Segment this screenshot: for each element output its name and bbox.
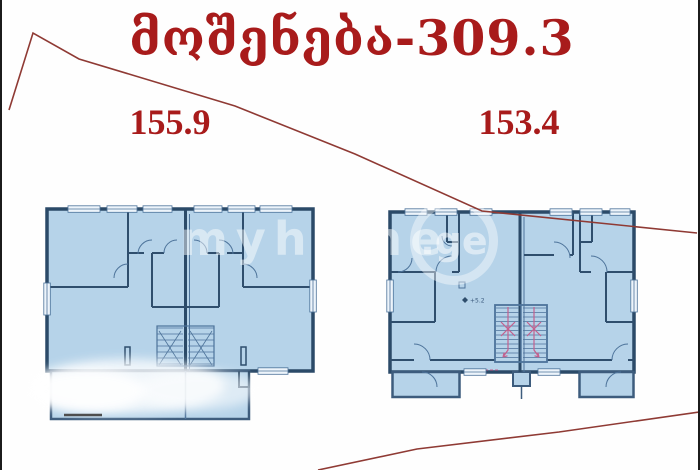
floor-plan-sheet: +5.2 bbox=[0, 0, 700, 470]
left-plan-door-arcs bbox=[114, 240, 257, 278]
balcony-left bbox=[393, 372, 460, 397]
elevation-mark: +5.2 bbox=[462, 297, 485, 305]
right-plan-windows bbox=[387, 209, 638, 375]
watermark-suffix: .ge bbox=[420, 219, 487, 263]
blurred-patch bbox=[29, 359, 259, 413]
page-title: მოშენება-309.3 bbox=[2, 10, 700, 66]
left-plan-stairs bbox=[157, 326, 214, 366]
area-label-right: 153.4 bbox=[469, 101, 569, 143]
left-plan-interior-walls bbox=[47, 209, 313, 307]
stair-arrows bbox=[480, 307, 562, 370]
right-floor-plan: +5.2 bbox=[387, 209, 638, 399]
left-plan-windows bbox=[44, 206, 317, 374]
right-plan-stairs bbox=[495, 305, 547, 362]
red-boundary-line-bottom bbox=[318, 412, 699, 470]
wall-stub bbox=[241, 347, 246, 365]
balcony-right bbox=[580, 372, 634, 397]
floor-plans-layer: +5.2 bbox=[2, 0, 700, 470]
watermark-main: myhome bbox=[180, 212, 449, 266]
right-plan-interior-walls bbox=[390, 212, 634, 360]
fixture-square bbox=[459, 282, 465, 288]
right-plan-door-arcs bbox=[398, 236, 628, 387]
watermark-text: myhome bbox=[180, 212, 449, 266]
wall-stub bbox=[125, 347, 130, 365]
left-floor-plan bbox=[29, 206, 316, 419]
watermark-circle-icon: .ge bbox=[410, 197, 498, 285]
elevation-label: +5.2 bbox=[470, 298, 485, 305]
boundary-lines-layer bbox=[2, 0, 700, 470]
area-label-left: 155.9 bbox=[120, 101, 220, 143]
